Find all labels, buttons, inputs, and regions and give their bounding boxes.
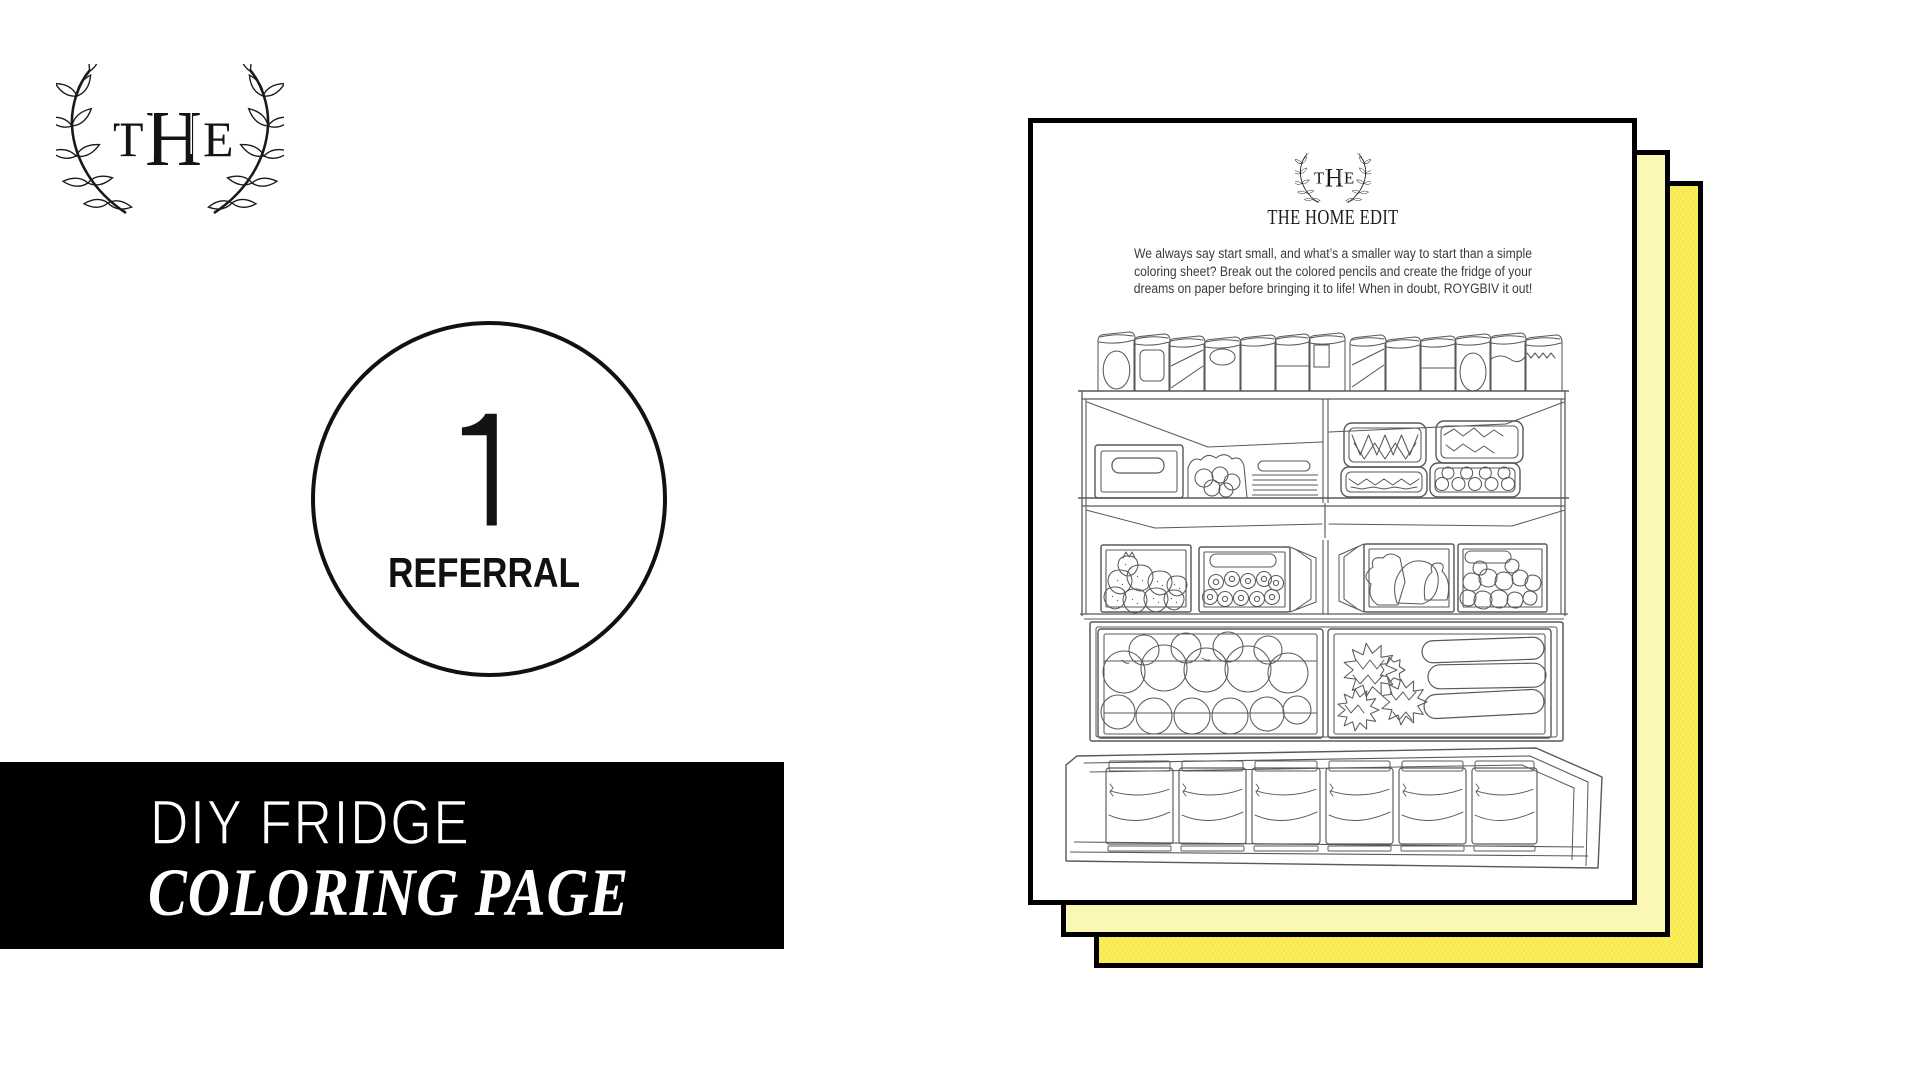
svg-text:E: E (1344, 169, 1354, 188)
svg-text:T: T (1314, 169, 1324, 188)
svg-text:E: E (203, 111, 234, 167)
svg-text:T: T (113, 111, 144, 167)
